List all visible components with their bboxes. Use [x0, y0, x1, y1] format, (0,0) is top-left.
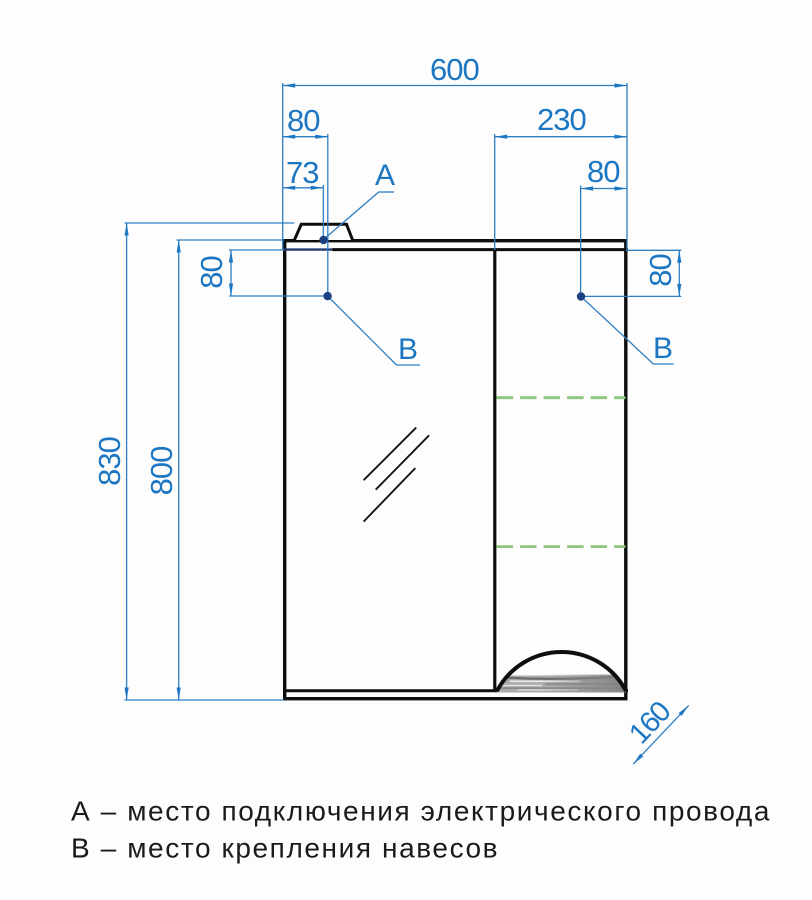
svg-text:830: 830	[92, 436, 127, 485]
svg-text:А – место подключения электрич: А – место подключения электрического про…	[71, 796, 771, 827]
svg-text:80: 80	[643, 254, 678, 287]
svg-text:80: 80	[587, 154, 620, 189]
svg-text:A: A	[375, 159, 395, 192]
svg-text:B: B	[398, 333, 418, 366]
svg-text:B: B	[653, 332, 673, 365]
svg-text:80: 80	[194, 256, 229, 289]
svg-text:600: 600	[430, 52, 479, 87]
svg-text:230: 230	[537, 102, 586, 137]
svg-text:800: 800	[144, 446, 179, 495]
svg-text:73: 73	[286, 155, 318, 190]
svg-text:В – место крепления навесов: В – место крепления навесов	[71, 833, 499, 864]
svg-text:80: 80	[287, 103, 320, 138]
